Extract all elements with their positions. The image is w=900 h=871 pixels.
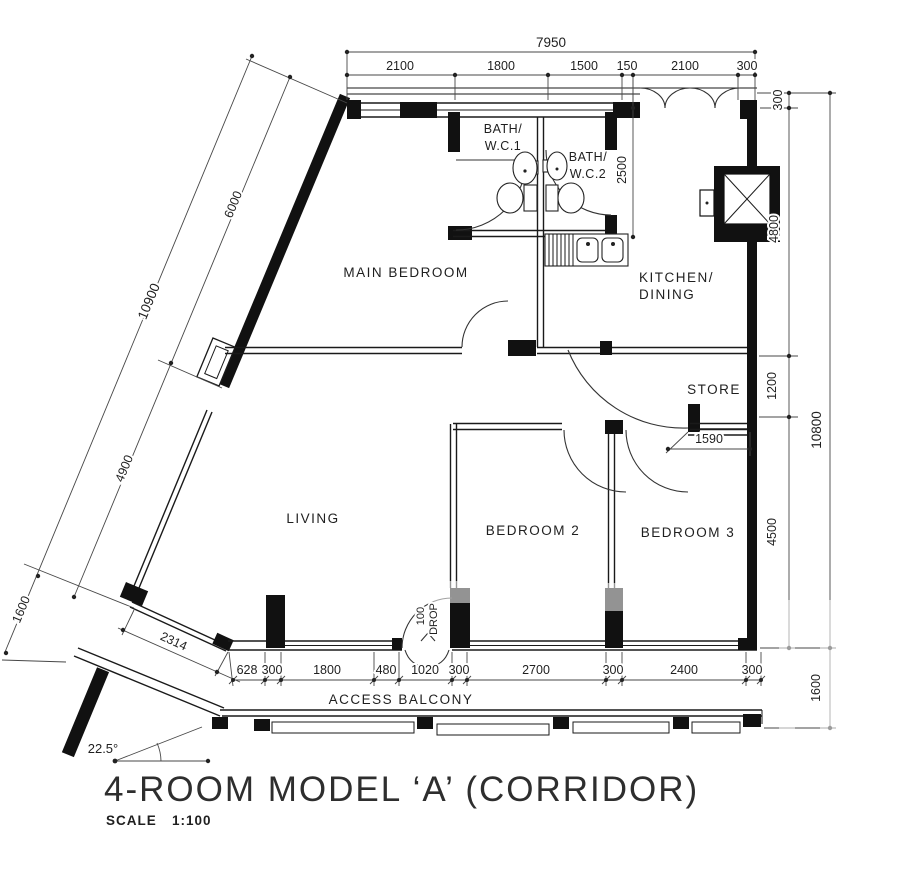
dim-bottom-6: 2700 bbox=[522, 663, 550, 677]
dim-bottom-3: 480 bbox=[376, 663, 397, 677]
floor-plan-page: 7950 2100 1800 1500 150 2100 300 300 480… bbox=[0, 0, 900, 871]
plan-title: 4-ROOM MODEL ‘A’ (CORRIDOR) bbox=[104, 770, 699, 809]
angle-label: 22.5° bbox=[88, 741, 119, 756]
dim-top-1: 1800 bbox=[487, 59, 515, 73]
label-bath2-line1: BATH/ bbox=[569, 150, 607, 164]
label-living: LIVING bbox=[286, 511, 339, 526]
drop-word: DROP bbox=[428, 603, 440, 635]
scale-label: SCALE bbox=[106, 813, 157, 828]
dim-top-2: 1500 bbox=[570, 59, 598, 73]
dim-right-3: 4500 bbox=[765, 518, 779, 546]
dim-left-1: 4900 bbox=[113, 453, 137, 484]
dim-top-3: 150 bbox=[617, 59, 638, 73]
label-bath1-line2: W.C.1 bbox=[485, 139, 522, 153]
angle-annotation: 22.5° bbox=[88, 727, 210, 763]
scale-value: 1:100 bbox=[172, 813, 212, 828]
dimension-chain-top: 7950 2100 1800 1500 150 2100 300 bbox=[345, 35, 758, 100]
dim-left-0: 6000 bbox=[222, 189, 246, 220]
dim-right-total: 10800 bbox=[809, 411, 824, 449]
dim-left-total: 10900 bbox=[135, 281, 163, 321]
floor-plan-canvas: 7950 2100 1800 1500 150 2100 300 300 480… bbox=[0, 0, 900, 871]
dim-bottom-5: 300 bbox=[449, 663, 470, 677]
dim-top-5: 300 bbox=[737, 59, 758, 73]
dim-store-width: 1590 bbox=[695, 432, 723, 446]
label-bath2-line2: W.C.2 bbox=[570, 167, 607, 181]
dimension-chain-left: 6000 4900 10900 1600 2314 bbox=[2, 54, 347, 682]
label-kitchen-line2: DINING bbox=[639, 287, 695, 302]
dim-slant: 2314 bbox=[158, 629, 189, 653]
dim-bottom-0: 628 bbox=[237, 663, 258, 677]
dim-bottom-1: 300 bbox=[262, 663, 283, 677]
dim-bottom-8: 2400 bbox=[670, 663, 698, 677]
title-block: 4-ROOM MODEL ‘A’ (CORRIDOR) SCALE 1:100 bbox=[104, 770, 699, 828]
dim-bath-depth: 2500 bbox=[615, 156, 629, 184]
dim-top-4: 2100 bbox=[671, 59, 699, 73]
dim-left-lower: 1600 bbox=[10, 594, 34, 625]
dim-bottom-2: 1800 bbox=[313, 663, 341, 677]
dim-right-1: 4800 bbox=[767, 215, 781, 243]
dim-bottom-7: 300 bbox=[603, 663, 624, 677]
fixtures bbox=[497, 152, 628, 266]
dim-top-total: 7950 bbox=[536, 35, 566, 50]
label-main-bedroom: MAIN BEDROOM bbox=[343, 265, 468, 280]
dim-right-0: 300 bbox=[771, 90, 785, 111]
label-store: STORE bbox=[687, 382, 741, 397]
label-bath1-line1: BATH/ bbox=[484, 122, 522, 136]
label-bedroom3: BEDROOM 3 bbox=[641, 525, 736, 540]
label-kitchen-line1: KITCHEN/ bbox=[639, 270, 714, 285]
dim-top-0: 2100 bbox=[386, 59, 414, 73]
dim-bottom-4: 1020 bbox=[411, 663, 439, 677]
dim-right-2: 1200 bbox=[765, 372, 779, 400]
haze-artifacts bbox=[418, 581, 837, 755]
dimension-chain-bottom: 628 300 1800 480 1020 300 2700 300 2400 … bbox=[229, 652, 765, 686]
label-access-balcony: ACCESS BALCONY bbox=[329, 692, 474, 707]
drop-value: 100 bbox=[415, 607, 427, 625]
dim-bottom-9: 300 bbox=[742, 663, 763, 677]
label-bedroom2: BEDROOM 2 bbox=[486, 523, 581, 538]
